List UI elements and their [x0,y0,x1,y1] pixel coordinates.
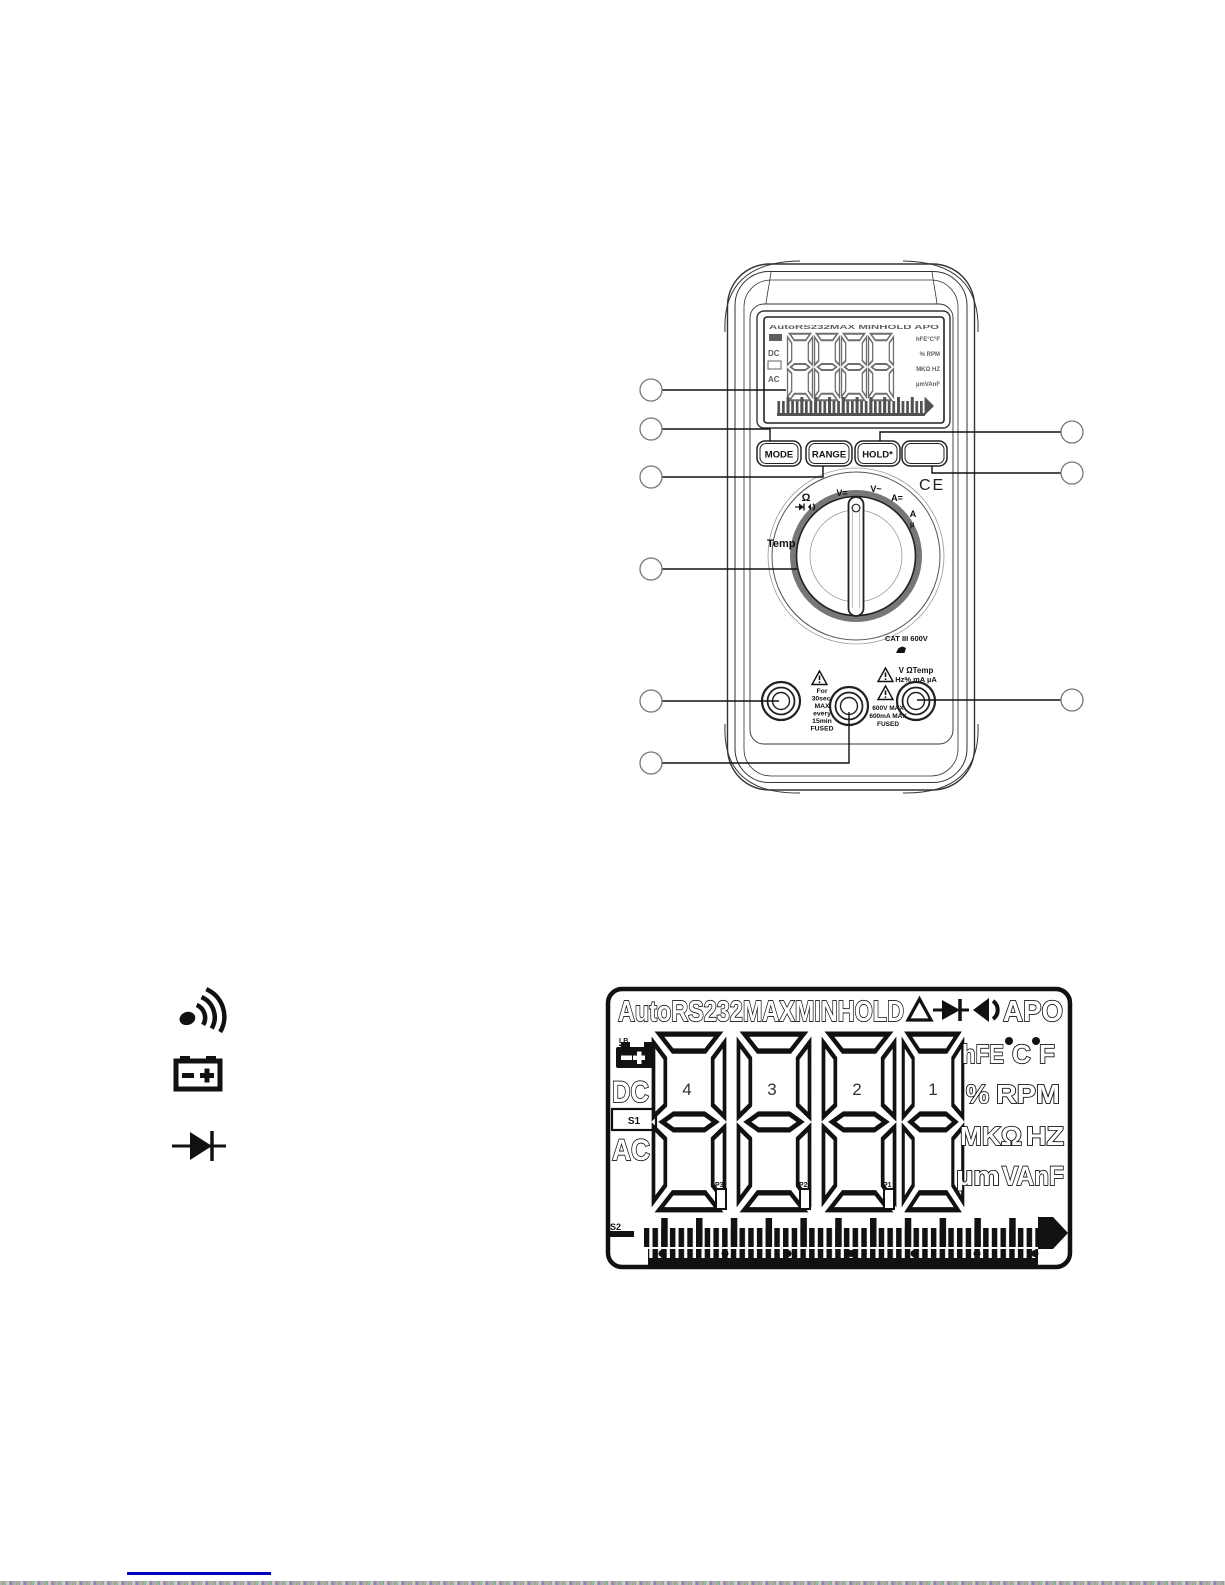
lcd-s1-box: S1 [612,1109,656,1130]
dial-diode-icon [795,504,804,511]
display-window: AutoRS232MAX MINHOLD APO DC AC hFE°C°F %… [757,311,950,428]
mode-button: MODE [757,441,801,466]
callout-jack-right [1061,689,1083,711]
rotary-dial: Temp Ω V= V~ A= A µ [767,468,944,644]
lcd-bargraph: S2 [609,1217,1068,1266]
lcd-hz-label: HZ [1026,1121,1064,1151]
mini-battery-icon [769,334,782,341]
range-button-label: RANGE [812,450,846,461]
jack-mid-line: 600V MAX [872,705,904,712]
jack-left-line: FUSED [810,726,833,733]
jack-right-label-text: V ΩTemp Hz% mA µA [895,666,937,684]
jack-mid-line: 600mA MAX [869,713,907,720]
footer-rule [127,1572,271,1575]
decimal-label: P2 [799,1182,808,1189]
mini-bargraph [777,397,934,416]
mini-ac-label: AC [768,375,780,384]
callout-jack-left [640,690,662,712]
jack-left-line: For [817,688,828,695]
lcd-annunciator-row: AutoRS232MAXMINHOLD [618,996,904,1028]
lcd-apo-label: APO [1003,996,1063,1028]
lcd-percent-label: % [966,1079,989,1109]
mini-unit-row-4: µmVAnF [916,382,940,388]
jack-right-line: V ΩTemp [899,666,934,675]
hold-backlight-button: HOLD* [855,441,900,466]
jack-left-warning-text: For 30sec. MAX every 15min FUSED [810,688,833,733]
jack-left-line: every [813,711,831,718]
dial-vac-label: V~ [870,484,881,494]
digit-number: 1 [928,1080,937,1099]
lcd-hfe-label: hFE [962,1039,1004,1069]
dial-temp-label: Temp [767,538,796,550]
callout-display [640,379,662,401]
lcd-ac-label: AC [612,1134,650,1167]
continuity-buzzer-icon [173,986,230,1043]
scan-edge-artifact [0,1581,1225,1585]
digit-number: 2 [852,1080,861,1099]
callout-hold-button [1061,421,1083,443]
symbol-legend-icons [150,975,260,1185]
callout-range-button [640,466,662,488]
jack-mid-line: FUSED [877,721,899,728]
diode-icon [172,1131,226,1161]
hold-button-label: HOLD* [862,450,893,461]
blank-button [902,441,947,466]
callout-mode-button [640,418,662,440]
lcd-mkohm-label: MKΩ [960,1121,1022,1151]
jack-left-line: 15min [812,718,832,725]
mode-button-label: MODE [765,450,794,461]
pointer-notch-icon [852,504,860,512]
warning-triangle-icon [812,671,827,685]
dial-micro-label: µ [910,520,915,529]
decimal-label: P1 [883,1182,892,1189]
warning-triangle-icon [878,668,893,682]
lcd-s1-label: S1 [628,1116,641,1127]
lcd-s2-label: S2 [610,1222,621,1232]
range-button: RANGE [806,441,852,466]
digit-number: 4 [682,1080,691,1099]
lcd-rpm-label: RPM [996,1079,1060,1109]
lcd-fahrenheit-label: F [1039,1039,1055,1069]
digit-number: 3 [767,1080,776,1099]
jack-mid-warning-text: 600V MAX 600mA MAX FUSED [869,705,907,728]
warning-triangle-icon [878,686,893,700]
jack-right-line: Hz% mA µA [895,675,937,684]
callout-blank-button [1061,462,1083,484]
lcd-celsius-label: C [1012,1039,1031,1069]
manual-page: AutoRS232MAX MINHOLD APO DC AC hFE°C°F %… [0,0,1225,1585]
jack-left-line: MAX [814,703,830,710]
lcd-diagram: AutoRS232MAXMINHOLD APO LB DC S1 [595,975,1095,1275]
mini-unit-row-3: MKΩ HZ [916,367,940,373]
low-battery-icon [176,1056,220,1089]
mini-dc-label: DC [768,349,780,358]
hand-icon [896,647,906,654]
multimeter-figure: AutoRS232MAX MINHOLD APO DC AC hFE°C°F %… [600,250,1120,795]
dial-aac-label: A [910,509,917,519]
callout-jack-com [640,752,662,774]
decimal-label: P3 [715,1182,724,1189]
lcd-dc-label: DC [612,1076,649,1109]
cat-rating-label: CAT III 600V [885,634,928,643]
dial-ohm-label: Ω [802,492,811,504]
mini-unit-row-2: % RPM [920,352,940,358]
button-row: MODE RANGE HOLD* [757,441,947,466]
lcd-micro-m-label: µm [956,1161,1000,1191]
ce-mark: CE [919,477,945,494]
dial-adc-label: A= [891,493,903,503]
jack-left-line: 30sec. [812,696,833,703]
lcd-vanf-label: VAnF [1002,1161,1064,1191]
callout-dial [640,558,662,580]
dial-knob-pointer [849,497,864,616]
mini-annunciator-row: AutoRS232MAX MINHOLD APO [769,325,940,331]
mini-unit-row-1: hFE°C°F [916,337,940,343]
dial-vdc-label: V= [836,488,847,498]
